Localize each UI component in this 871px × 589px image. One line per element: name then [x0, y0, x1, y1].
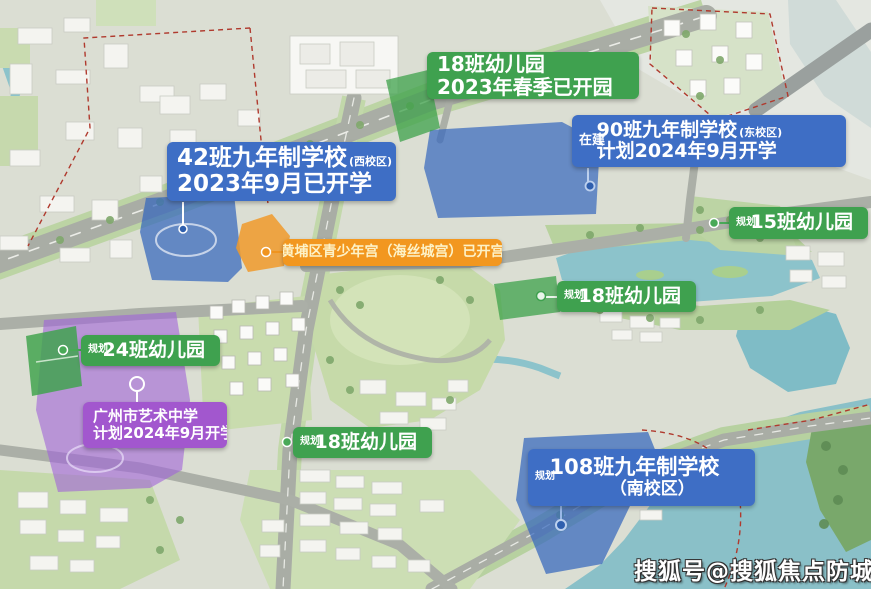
marker-dot-school108	[556, 520, 566, 530]
label-art-school: 广州市艺术中学 计划2024年9月开学	[83, 402, 227, 448]
marker-dot-youth-palace	[262, 248, 271, 257]
planning-map: 18班幼儿园 2023年春季已开园 在建 90班九年制学校(东校区) 计划202…	[0, 0, 871, 589]
marker-dot-kg24	[59, 346, 68, 355]
zone-kindergarten-24	[26, 326, 82, 396]
label-line: 90班九年制学校(东校区)	[597, 120, 783, 141]
label-campus-note: (西校区)	[349, 155, 392, 168]
planning-tag: 规划	[564, 291, 575, 302]
label-kindergarten-24: 规划 24班幼儿园	[81, 335, 220, 366]
planning-tag: 规划	[535, 472, 546, 483]
label-text: 黄埔区青少年宫（海丝城宫）已开宫	[283, 245, 502, 261]
label-kindergarten-18-opened: 18班幼儿园 2023年春季已开园	[427, 52, 639, 99]
label-line: 2023年9月已开学	[177, 172, 392, 198]
label-line: 计划2024年9月开学	[93, 425, 227, 442]
watermark: 搜狐号@搜狐焦点防城港站	[634, 552, 871, 586]
planning-tag: 规划	[300, 437, 311, 448]
status-tag: 在建	[579, 134, 593, 148]
label-kindergarten-18-south: 规划 18班幼儿园	[293, 427, 432, 458]
label-text: 18班幼儿园	[579, 286, 681, 307]
label-campus-note: (东校区)	[739, 126, 782, 139]
marker-dot-school42	[179, 225, 187, 233]
label-line: 2023年春季已开园	[437, 76, 613, 98]
label-line: 计划2024年9月开学	[597, 141, 783, 162]
label-line: 18班幼儿园	[437, 53, 613, 75]
label-school-42-west: 42班九年制学校(西校区) 2023年9月已开学	[167, 142, 396, 201]
label-text: 90班九年制学校	[597, 119, 737, 141]
marker-dot-school90	[586, 182, 595, 191]
marker-dot-kg18-south	[283, 438, 292, 447]
marker-dot-kg18-mid	[537, 292, 546, 301]
label-line: 广州市艺术中学	[93, 408, 227, 425]
label-line: 108班九年制学校	[550, 456, 756, 480]
label-text: 24班幼儿园	[103, 340, 205, 361]
label-kindergarten-15: 规划 15班幼儿园	[729, 207, 868, 239]
planning-tag: 规划	[736, 218, 747, 229]
label-kindergarten-18-mid: 规划 18班幼儿园	[557, 281, 696, 312]
label-line: 42班九年制学校(西校区)	[177, 146, 392, 172]
label-youth-palace: 黄埔区青少年宫（海丝城宫）已开宫	[283, 239, 502, 266]
label-campus-note: （南校区）	[550, 480, 756, 499]
label-text: 15班幼儿园	[751, 212, 853, 233]
label-text: 18班幼儿园	[315, 432, 417, 453]
planning-tag: 规划	[88, 345, 99, 356]
label-school-90-east: 在建 90班九年制学校(东校区) 计划2024年9月开学	[572, 115, 846, 167]
marker-dot-kg15	[710, 219, 719, 228]
label-school-108-south: 规划 108班九年制学校 （南校区）	[528, 449, 755, 506]
label-text: 42班九年制学校	[177, 145, 347, 171]
